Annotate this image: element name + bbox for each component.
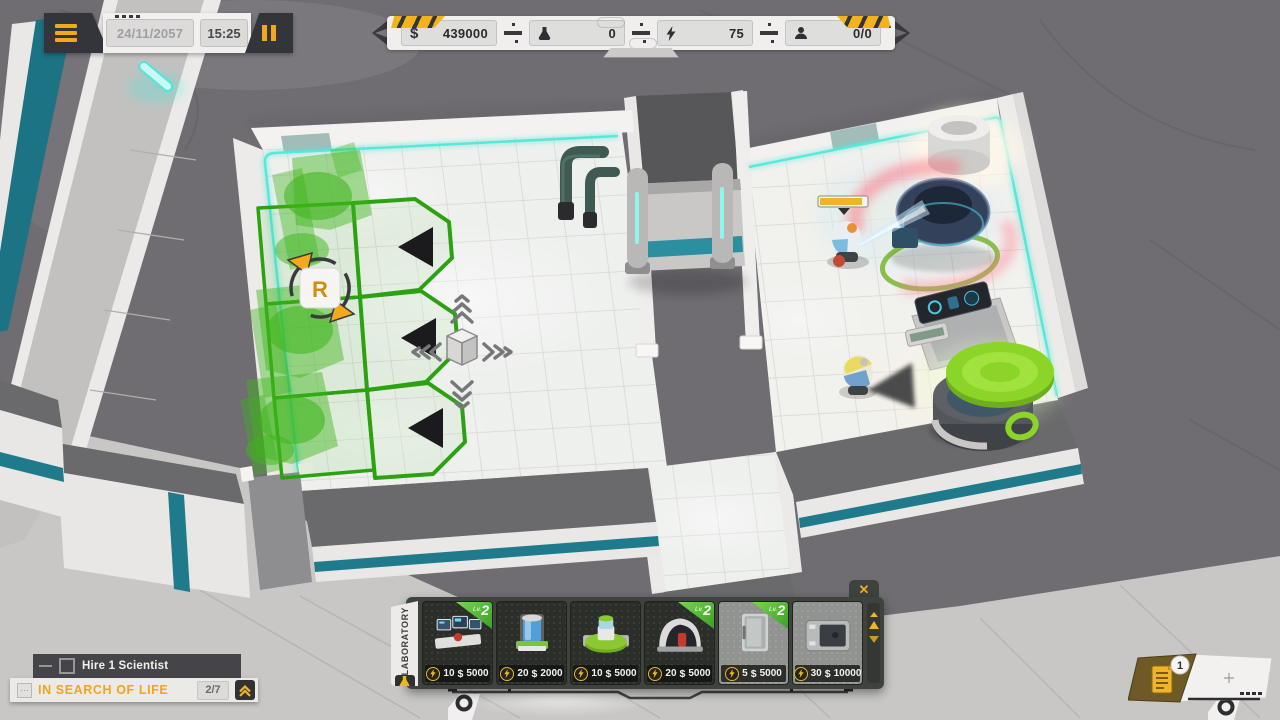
bar-connector <box>632 31 650 35</box>
airlock-door[interactable] <box>625 163 748 295</box>
bolt-icon <box>794 667 808 681</box>
mission-progress: 2/7 <box>197 681 229 700</box>
person-icon <box>794 26 808 40</box>
collapse-button[interactable] <box>235 680 255 700</box>
build-item-sample-tank[interactable]: 20 $ 2000 <box>496 601 567 685</box>
item-cost: 10 $ 5000 <box>573 665 638 682</box>
bolt-icon <box>426 667 440 681</box>
item-image-sample-tank <box>497 602 566 663</box>
build-item-wall-cabinet[interactable]: Lv.2 5 $ 5000 <box>718 601 789 685</box>
time-display[interactable]: 15:25 <box>200 19 248 47</box>
task-checkbox[interactable] <box>59 658 75 674</box>
energy-value: 75 <box>729 26 744 41</box>
reports-widget[interactable]: 1 <box>1128 652 1276 706</box>
build-item-mixer[interactable]: 10 $ 5000 <box>570 601 641 685</box>
bar-tab <box>603 48 679 58</box>
scroll-down-icon[interactable] <box>869 636 879 643</box>
bolt-icon <box>666 26 676 41</box>
mission-list-icon: … <box>17 683 32 698</box>
bar-end-cap <box>895 21 910 45</box>
item-cost: 20 $ 5000 <box>647 665 712 682</box>
item-cost: 5 $ 5000 <box>721 665 786 682</box>
quest-task[interactable]: Hire 1 Scientist <box>33 654 241 678</box>
cloud-icon <box>597 17 625 28</box>
bar-end-cap <box>372 21 387 45</box>
build-item-research-console[interactable]: Lv.2 10 $ 5000 <box>422 601 493 685</box>
pause-icon <box>262 25 267 41</box>
item-image-storage-container <box>793 602 862 663</box>
scroll-up-icon[interactable] <box>869 621 879 629</box>
menu-scroll[interactable] <box>867 603 880 683</box>
bar-connector <box>760 31 778 35</box>
reports-badge: 1 <box>1177 660 1183 672</box>
category-tab-laboratory[interactable]: LABORATORY <box>391 601 418 686</box>
bar-connector <box>504 31 522 35</box>
bolt-icon <box>500 667 514 681</box>
clock-body: 24/11/2057 15:25 <box>103 13 251 53</box>
energy-stat[interactable]: 75 <box>657 20 753 46</box>
document-icon <box>1152 666 1172 693</box>
quest-mission[interactable]: … IN SEARCH OF LIFE 2/7 <box>10 678 258 702</box>
rotate-key-label: R <box>312 277 328 302</box>
scroll-up-icon[interactable] <box>870 612 878 617</box>
bolt-icon <box>725 667 739 681</box>
bolt-icon <box>574 667 588 681</box>
money-value: 439000 <box>443 26 488 41</box>
build-item-storage-container[interactable]: 30 $ 10000 <box>792 601 863 685</box>
double-chevron-up-icon <box>238 683 252 697</box>
item-cost: 30 $ 10000 <box>795 665 860 682</box>
door-light <box>635 192 639 244</box>
resource-bar: $ 439000 0 75 0/0 <box>372 14 910 52</box>
pause-button[interactable] <box>245 13 293 53</box>
build-item-analysis-dome[interactable]: Lv.2 20 $ 5000 <box>644 601 715 685</box>
door-light <box>720 187 724 239</box>
category-label: LABORATORY <box>400 607 410 675</box>
game-screen: R 24/11/2057 15:25 <box>0 0 1280 720</box>
clock-bar: 24/11/2057 15:25 <box>44 13 293 53</box>
hamburger-icon <box>55 24 77 28</box>
build-menu: Lv.2 10 $ 5000 <box>406 597 884 689</box>
item-cost: 20 $ 2000 <box>499 665 564 682</box>
task-connector <box>39 665 52 667</box>
bolt-icon <box>648 667 662 681</box>
menu-button[interactable] <box>44 13 109 53</box>
item-cost: 10 $ 5000 <box>425 665 490 682</box>
date-display[interactable]: 24/11/2057 <box>106 19 194 47</box>
mission-title: IN SEARCH OF LIFE <box>38 683 168 697</box>
item-image-mixer <box>571 602 640 663</box>
task-label: Hire 1 Scientist <box>82 660 168 672</box>
flask-icon <box>538 26 551 41</box>
